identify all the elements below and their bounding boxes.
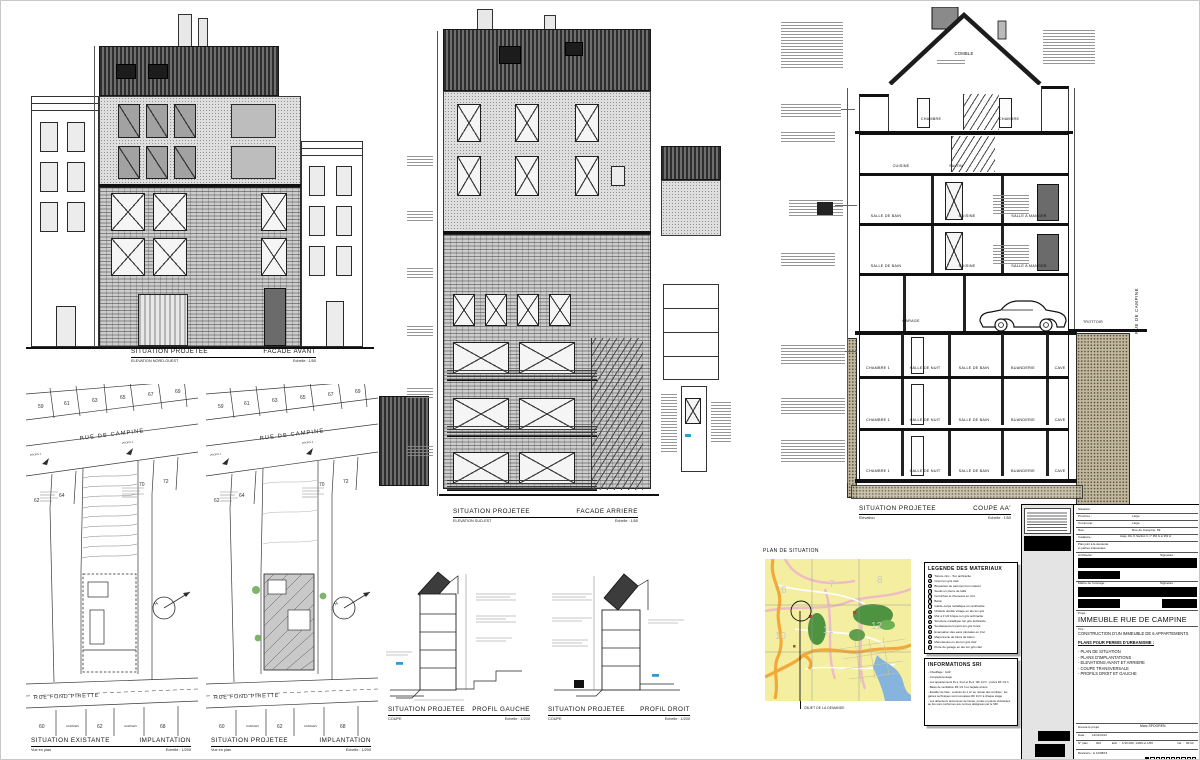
drawing-title: CONSTRUCTION D'UN IMMEUBLE DE 6 APPARTEM… (1078, 632, 1189, 636)
window (611, 166, 625, 186)
street-label: RUE DE CAMPINE (260, 428, 325, 442)
sri-line: - Compartimentage (928, 676, 1014, 679)
view-type: PROFIL GAUCHE (472, 707, 530, 714)
plans-item: - ELEVATIONS AVANT ET ARRIERE (1078, 661, 1145, 665)
field-label: N° plan : (1078, 742, 1090, 745)
balcony-cut (817, 202, 833, 215)
annex-floor (663, 332, 719, 333)
legend-number: 2 (928, 579, 932, 583)
view-scale: Echelle : 1/200 (166, 748, 191, 752)
annotation (781, 344, 845, 364)
window (40, 202, 58, 232)
window (515, 104, 539, 142)
field-label: Projet : (1078, 612, 1087, 615)
cornice (301, 148, 363, 149)
view-name: SITUATION PROJETEE (388, 707, 465, 714)
room-label: SALLE DE BAIN (959, 470, 990, 474)
legend-text: Menuiseries en alu ton gris clair (934, 641, 976, 644)
partition-wall (948, 379, 951, 425)
earth-hatch (851, 485, 1083, 499)
annotation (711, 402, 731, 442)
field-label: Dressé le projet (1078, 726, 1099, 729)
cornice (301, 155, 363, 156)
view-type: FACADE AVANT (263, 349, 316, 356)
window (146, 146, 168, 179)
leader-line (841, 109, 855, 110)
annex-roof (661, 146, 721, 180)
partition-wall (948, 431, 951, 476)
field-label: Situation : (1078, 508, 1092, 511)
room-label: COMBLE (955, 52, 974, 56)
view-type: IMPLANTATION (319, 738, 371, 745)
view-title-impl-exist: SITUATION EXISTANTEIMPLANTATION Vue en p… (31, 738, 191, 753)
room-label: BUANDERIE (1011, 470, 1035, 474)
attic-window (917, 98, 930, 128)
annotation (1043, 30, 1095, 64)
window (457, 156, 481, 196)
door (56, 306, 76, 347)
legend-text: Structure métallique ton gris anthracite (934, 620, 985, 623)
view-name: SITUATION PROJETEE (548, 707, 625, 714)
annotation (1027, 512, 1067, 531)
legend-number: 1 (928, 574, 932, 578)
redaction-bar (1024, 536, 1071, 551)
window (575, 156, 599, 196)
annex-floor (663, 356, 719, 357)
annotation (407, 326, 433, 336)
roof-window (565, 42, 583, 56)
north-letter: N (333, 601, 339, 607)
sidewalk-label: TROTTOIR (1083, 321, 1103, 325)
panel-facade-avant (26, 6, 374, 368)
view-name: SITUATION PROJETEE (131, 349, 208, 356)
leader-line (800, 701, 801, 709)
window (515, 156, 539, 196)
field-value: 002 (1096, 742, 1101, 745)
dimension-line (847, 88, 848, 483)
map-grid-number: 10 (775, 631, 787, 642)
window (40, 162, 58, 192)
map-title: PLAN DE SITUATION (763, 549, 819, 554)
room-label: CAVE (1055, 419, 1066, 423)
garage-door (138, 294, 188, 346)
field-value: Liège, Div. 9, Section C, n° 252 G et 25… (1120, 536, 1171, 539)
partition-wall (1046, 379, 1049, 425)
partition-wall (901, 431, 904, 476)
parcel-number: 69 (175, 389, 181, 395)
parcel-number: 64 (239, 493, 245, 499)
chimney (198, 18, 208, 47)
room-label: SALLE DE BAIN (871, 265, 902, 269)
legend-number: 9 (928, 615, 932, 619)
legend-text: Mur à 1'1/2 brique ton gris anthracite (934, 615, 983, 618)
title-block: Situation : Province : Liège Commune : L… (1021, 504, 1200, 760)
partition-wall (931, 176, 934, 223)
room-label: HALLE DE NUIT (910, 470, 941, 474)
legend-number: 8 (928, 610, 932, 614)
room-label: BUANDERIE (1011, 367, 1035, 371)
water-level-marker (396, 662, 403, 665)
side-annex (859, 94, 889, 134)
legend-number: 3 (928, 584, 932, 588)
site-plan-existing: N 59 61 63 65 67 69 62 64 70 72 60 62 68… (26, 384, 198, 736)
window (174, 104, 196, 138)
legend-text: Corniches et cheneaux en zinc (934, 595, 975, 598)
field-value: 14/11/2014 (1092, 734, 1107, 737)
legend-text: Garde-corps métallique ton anthracite (934, 605, 984, 608)
view-sub: Vue en plan (211, 748, 231, 752)
view-scale: Echelle : 1/200 (665, 717, 690, 721)
legend-number: 11 (928, 625, 932, 629)
window (118, 104, 140, 138)
window (174, 146, 196, 179)
view-scale: Echelle : 1/50 (615, 519, 638, 523)
legend-text: Porte de garage en alu ton gris clair (934, 646, 982, 649)
room-label: HALLE DE NUIT (910, 419, 941, 423)
chimney (178, 14, 192, 47)
parcel-number: 61 (64, 401, 70, 407)
view-sub: ELEVATION NORD-OUEST (131, 359, 178, 363)
annotation (781, 22, 843, 68)
roof-window (499, 46, 521, 64)
window (485, 294, 507, 326)
annotation (993, 194, 1029, 214)
room-label: CHAMBRE 1 (866, 419, 890, 423)
balcony-railing (447, 368, 597, 381)
attic-window (999, 98, 1012, 128)
window (67, 122, 85, 152)
view-title-facade-arriere: SITUATION PROJETEEFACADE ARRIERE ELEVATI… (453, 509, 638, 524)
room-label: GARAGE (902, 320, 919, 324)
parcel-number: 72 (163, 479, 169, 485)
room-label: CHAMBRE (999, 118, 1019, 122)
note: et parties intéressées (1078, 547, 1105, 550)
profil-label: PROFIL 2 (122, 440, 134, 445)
cut-element (574, 680, 584, 688)
view-type: COUPE AA' (973, 506, 1011, 513)
roof-window (148, 64, 168, 79)
legend-text: Maçonnerie de blocs de béton (934, 636, 974, 639)
field-value: Rue de Campine, 99 (1132, 529, 1160, 532)
parcel-number: 62 (277, 724, 283, 730)
project-title: IMMEUBLE RUE DE CAMPINE (1078, 616, 1187, 623)
legend-number: 15 (928, 645, 932, 649)
garages-label: GARAGES (124, 724, 137, 728)
window (67, 162, 85, 192)
redaction-bar (1162, 599, 1197, 608)
window (457, 104, 481, 142)
map-grid-number: 6 (781, 585, 787, 596)
window (118, 146, 140, 179)
panel-facade-arriere (379, 6, 751, 521)
stair (963, 94, 999, 130)
floor-slab (859, 173, 1069, 176)
profil-droit-drawing (544, 564, 694, 704)
field-label: Commune : (1078, 522, 1094, 525)
legend-text: Châssis double vitrage en alu ton gris (934, 610, 984, 613)
chimney (477, 9, 493, 31)
field-label: Titre : (1078, 628, 1085, 631)
parcel-number: 61 (244, 401, 250, 407)
window (309, 206, 325, 236)
annotation (407, 211, 433, 221)
plans-item: - PROFILS DROIT ET GAUCHE (1078, 672, 1137, 676)
legend-text: Seuils en pierre de taille (934, 590, 966, 593)
legend-number: 7 (928, 604, 932, 608)
notes-box (1024, 508, 1071, 534)
sri-line: - Les appartements R+1, R+2 et R+3 : RF … (928, 681, 1014, 684)
room-label: SALLE DE BAIN (871, 215, 902, 219)
garages-label: GARAGES (304, 724, 317, 728)
divider (1076, 626, 1198, 627)
parcel-number: 60 (219, 724, 225, 730)
street-label: RUE DE CAMPINE (80, 428, 145, 442)
annotation (781, 102, 841, 117)
field-label: Date : (1078, 734, 1086, 737)
room-label: CUISINE (959, 265, 976, 269)
profil-label: PROFIL 1 (30, 452, 42, 457)
view-name: SITUATION EXISTANTE (31, 738, 110, 745)
profil-label: PROFIL 2 (302, 440, 314, 445)
parcel-number: 72 (343, 479, 349, 485)
window (40, 122, 58, 152)
dimension-line (437, 31, 438, 496)
balcony-railing (447, 424, 597, 437)
plans-item: - COUPE TRANSVERSALE (1078, 667, 1129, 671)
sri-line: - Chauffage : GAZ (928, 671, 1014, 674)
window (517, 294, 539, 326)
car-icon (975, 294, 1067, 332)
roof (443, 29, 651, 91)
view-scale: Echelle : 1/50 (293, 359, 316, 363)
view-sub: COUPE (548, 717, 562, 721)
legend-number: 10 (928, 620, 932, 624)
earth-hatch (847, 338, 857, 498)
partition-wall (1001, 334, 1004, 376)
floor-slab (859, 376, 1069, 379)
parcel-number: 64 (59, 493, 65, 499)
water-level-marker (652, 674, 659, 677)
parcel-number: 68 (340, 724, 346, 730)
window (549, 294, 571, 326)
leader-line (835, 205, 857, 206)
divider (1076, 723, 1198, 724)
window (685, 398, 701, 424)
parcel-number: 63 (92, 398, 98, 404)
legend-text: Briquettes de parement ton naturel (934, 585, 980, 588)
leader-line (845, 351, 857, 352)
room-label: SALLE A MANGER (1011, 215, 1047, 219)
room-label: SALLE DE BAIN (959, 419, 990, 423)
situation-map: 6 7 8 10 11 12 (765, 559, 911, 701)
room-label: CAVE (1055, 470, 1066, 474)
room-label: SALLE A MANGER (1011, 265, 1047, 269)
legend-text: Soubassement peint ton gris foncé (934, 625, 980, 628)
annotation (407, 388, 433, 398)
street-label: RUE FOND PIRETTE (34, 693, 99, 701)
room-label: SALLE DE BAIN (959, 367, 990, 371)
view-name: SITUATION PROJETEE (211, 738, 288, 745)
sri-line: - Les détecteurs autonomes de fumée, por… (928, 700, 1014, 707)
plans-item: - PLANS D'IMPLANTATIONS (1078, 656, 1131, 660)
earth-hatch (1076, 333, 1130, 511)
view-type: FACADE ARRIERE (576, 509, 638, 516)
parcel-number: 70 (139, 482, 145, 488)
parcel-number: 70 (319, 482, 325, 488)
field-value: Liège (1132, 522, 1140, 525)
north-letter: N (153, 601, 159, 607)
partition-wall (1046, 431, 1049, 476)
author-name: Marc SPOOREN (1140, 725, 1165, 728)
partition-wall (1046, 334, 1049, 376)
ground-line (439, 494, 659, 496)
window (336, 166, 352, 196)
title-block-margin (1022, 505, 1074, 759)
field-value: Liège (1132, 515, 1140, 518)
window (153, 193, 187, 231)
coupe-roof (886, 7, 1044, 85)
view-type: IMPLANTATION (139, 738, 191, 745)
plans-item: - PLAN DE SITUATION (1078, 650, 1121, 654)
field-label: Ech. : (1112, 742, 1120, 745)
map-grid-number: 7 (829, 579, 835, 590)
door (326, 301, 344, 347)
view-scale: Echelle : 1/50 (988, 516, 1011, 520)
field-label: Signature : (1160, 582, 1175, 585)
annotation (661, 392, 677, 452)
side-annex (1041, 86, 1069, 134)
window (146, 104, 168, 138)
field-label: Cadastre : (1078, 536, 1092, 539)
plans-heading: PLANS POUR PERMIS D'URBANISME : (1078, 641, 1154, 645)
cornice (31, 103, 99, 104)
legend-box: LEGENDE DES MATERIAUX 1Toiture zinc - To… (924, 562, 1018, 654)
room-label: CAVE (1055, 367, 1066, 371)
field-label: Signature : (1160, 554, 1175, 557)
shed (379, 396, 429, 486)
view-scale: Echelle : 1/200 (505, 717, 530, 721)
window (261, 193, 287, 231)
view-title-facade-avant: SITUATION PROJETEEFACADE AVANT ELEVATION… (131, 349, 316, 364)
floor-slab (855, 331, 1077, 335)
foundation-slab (855, 479, 1077, 483)
parcel-number: 67 (328, 392, 334, 398)
sri-line: - Baies de ventilation RF 1/2 h en façad… (928, 686, 1014, 689)
redaction-bar (1078, 571, 1120, 580)
map-caption: OBJET DE LA DEMANDE (804, 707, 845, 710)
parcel-number: 67 (148, 392, 154, 398)
view-title-profil-droit: SITUATION PROJETEEPROFIL DROIT COUPEEche… (548, 707, 690, 722)
annex-floor (663, 308, 719, 309)
street-name-vertical: RUE DE CAMPINE (1134, 256, 1139, 334)
redaction-bar (1035, 744, 1065, 757)
parcel-number: 59 (38, 404, 44, 410)
field-label: Architecte : (1078, 554, 1093, 557)
revision-checkboxes (1144, 750, 1196, 760)
legend-number: 6 (928, 599, 932, 603)
partition-wall (901, 334, 904, 376)
annotation (407, 156, 433, 166)
parcel-number: 63 (272, 398, 278, 404)
window (231, 104, 276, 138)
field-label: Maître de l'ouvrage : (1078, 582, 1106, 585)
view-sub: Vue en plan (31, 748, 51, 752)
garages-label: GARAGES (66, 724, 79, 728)
level-marker (685, 434, 691, 437)
site-plan-projected: N 59 61 63 65 67 69 62 64 70 72 60 62 68… (206, 384, 378, 736)
legend-text: Evacuation des eaux pluviales en zinc (934, 631, 985, 634)
partition-wall (1001, 431, 1004, 476)
room-label: HALLE DE NUIT (910, 367, 941, 371)
partition-wall (931, 226, 934, 273)
parcel-number: 62 (214, 498, 220, 504)
partition-wall (948, 334, 951, 376)
entrance-door (264, 288, 286, 346)
balcony-railing (447, 478, 597, 491)
legend-number: 4 (928, 589, 932, 593)
parcel-number: 59 (218, 404, 224, 410)
view-title-impl-proj: SITUATION PROJETEEIMPLANTATION Vue en pl… (211, 738, 371, 753)
window (575, 104, 599, 142)
annotation (407, 446, 433, 456)
floor-slab (859, 428, 1069, 431)
tree (320, 593, 327, 600)
sri-title: INFORMATIONS SRI (925, 659, 1017, 670)
parcel-number: 62 (34, 498, 40, 504)
window (336, 246, 352, 276)
profil-label: PROFIL 1 (210, 452, 222, 457)
legend-title: LEGENDE DES MATERIAUX (925, 563, 1017, 574)
drawing-sheet: SITUATION PROJETEEFACADE AVANT ELEVATION… (0, 0, 1200, 760)
view-title-profil-gauche: SITUATION PROJETEEPROFIL GAUCHE COUPEEch… (388, 707, 530, 722)
room-label: CHAMBRE (921, 118, 941, 122)
legend-text: Crépi ton gris clair (934, 580, 958, 583)
window (336, 206, 352, 236)
dimension-line (94, 46, 95, 347)
profil-gauche-drawing (384, 564, 534, 704)
map-grid-number: 8 (877, 575, 883, 586)
floor-slab (859, 223, 1069, 226)
annotation (993, 244, 1029, 264)
room-label: CUISINE (959, 215, 976, 219)
parcel-number: 69 (355, 389, 361, 395)
window (309, 246, 325, 276)
partition-wall (963, 276, 966, 331)
panel-coupe: COMBLE CHAMBRE CHAMBRE CUISINE SALON SAL… (771, 6, 1151, 521)
legend-text: Toiture zinc - Ton anthracite (934, 575, 971, 578)
map-grid-number: 12 (871, 621, 883, 632)
window (309, 166, 325, 196)
parcel-number: 65 (120, 395, 126, 401)
view-name: SITUATION PROJETEE (859, 506, 936, 513)
exterior-stair (591, 338, 643, 490)
sri-box: INFORMATIONS SRI - Chauffage : GAZ - Com… (924, 658, 1018, 726)
annotation (789, 198, 843, 216)
window (111, 238, 145, 276)
street-label: RUE FOND PIRETTE (214, 693, 279, 701)
field-value: 1/10.000, 1/200 et 1/50 (1122, 742, 1153, 745)
divider (1076, 552, 1198, 553)
map-grid-number: 11 (823, 625, 834, 636)
roof-window (116, 64, 136, 79)
room-label: CHAMBRE 1 (866, 367, 890, 371)
parcel-number: 62 (97, 724, 103, 730)
tree (252, 586, 260, 594)
room-label: CHAMBRE 1 (866, 470, 890, 474)
window (67, 202, 85, 232)
dimension-line (1074, 88, 1075, 329)
field-label: Province : (1078, 515, 1092, 518)
